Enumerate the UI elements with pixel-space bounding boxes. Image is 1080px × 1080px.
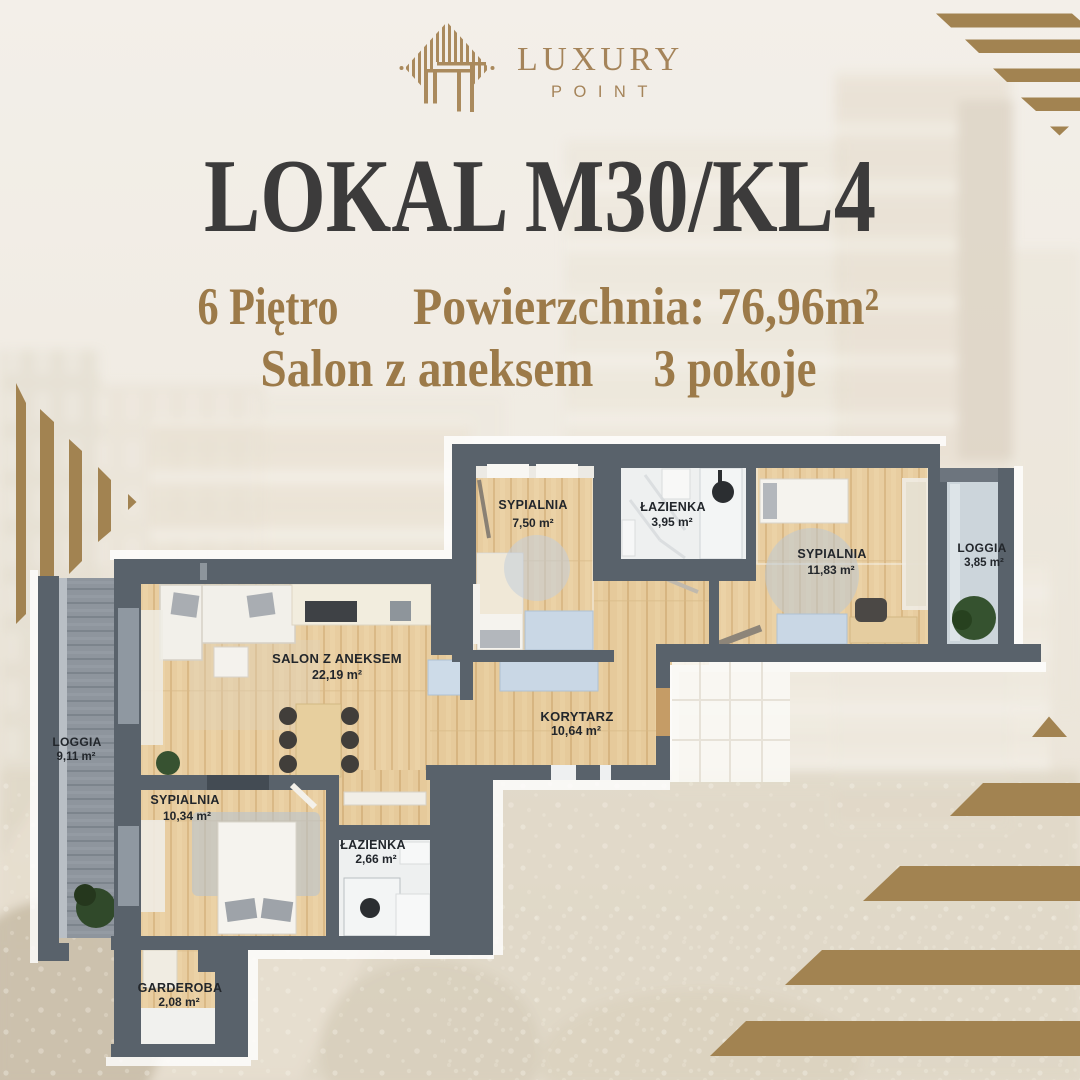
- svg-text:ŁAZIENKA: ŁAZIENKA: [340, 838, 406, 852]
- svg-text:ŁAZIENKA: ŁAZIENKA: [640, 500, 706, 514]
- svg-text:SALON Z ANEKSEM: SALON Z ANEKSEM: [272, 651, 402, 666]
- svg-text:9,11 m²: 9,11 m²: [57, 751, 96, 763]
- svg-text:22,19 m²: 22,19 m²: [312, 668, 362, 682]
- svg-text:3,85 m²: 3,85 m²: [964, 557, 1004, 569]
- svg-text:LUXURY: LUXURY: [517, 41, 684, 78]
- svg-text:LOGGIA: LOGGIA: [52, 735, 101, 749]
- svg-text:POINT: POINT: [551, 83, 659, 101]
- svg-text:10,34 m²: 10,34 m²: [163, 809, 211, 823]
- svg-text:GARDEROBA: GARDEROBA: [138, 981, 223, 995]
- svg-text:SYPIALNIA: SYPIALNIA: [797, 547, 866, 561]
- svg-text:2,08 m²: 2,08 m²: [158, 995, 199, 1009]
- svg-text:11,83 m²: 11,83 m²: [807, 563, 854, 577]
- svg-text:Salon z aneksem: Salon z aneksem: [261, 340, 594, 398]
- svg-text:SYPIALNIA: SYPIALNIA: [498, 498, 567, 512]
- svg-text:10,64 m²: 10,64 m²: [551, 724, 601, 738]
- svg-text:6 Piętro: 6 Piętro: [198, 278, 339, 336]
- svg-text:3,95 m²: 3,95 m²: [651, 515, 692, 529]
- svg-text:3 pokoje: 3 pokoje: [654, 340, 817, 398]
- svg-text:LOKAL M30/KL4: LOKAL M30/KL4: [204, 137, 876, 254]
- svg-text:SYPIALNIA: SYPIALNIA: [150, 793, 219, 807]
- svg-text:7,50 m²: 7,50 m²: [512, 516, 553, 530]
- svg-text:LOGGIA: LOGGIA: [957, 541, 1006, 555]
- svg-text:Powierzchnia: 76,96m²: Powierzchnia: 76,96m²: [413, 278, 879, 336]
- svg-text:2,66 m²: 2,66 m²: [355, 852, 396, 866]
- svg-text:KORYTARZ: KORYTARZ: [540, 709, 613, 724]
